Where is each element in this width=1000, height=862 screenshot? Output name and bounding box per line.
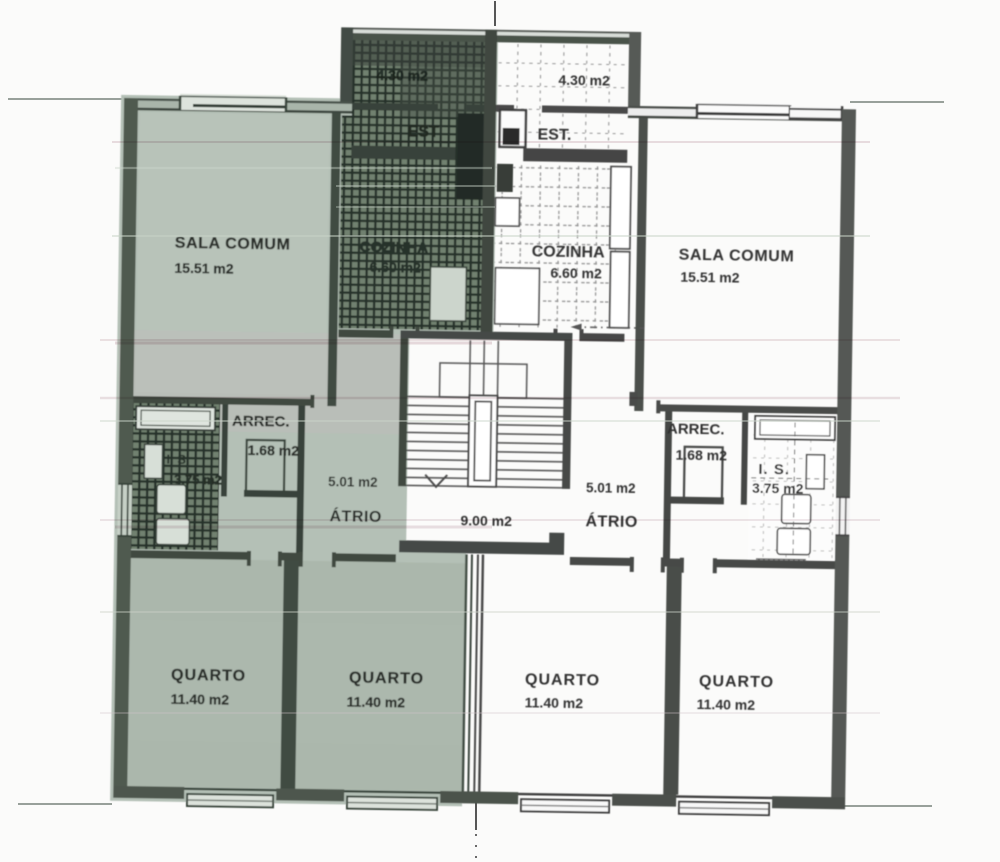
svg-text:11.40 m2: 11.40 m2 [525,694,584,711]
svg-text:6.60 m2: 6.60 m2 [369,259,421,276]
svg-text:I. S.: I. S. [758,461,790,478]
svg-text:11.40 m2: 11.40 m2 [347,693,406,710]
svg-text:I. S.: I. S. [166,452,189,467]
svg-text:ARREC.: ARREC. [667,420,725,438]
svg-text:ÁTRIO: ÁTRIO [329,506,382,526]
svg-text:COZINHA: COZINHA [360,239,429,257]
svg-text:ÁTRIO: ÁTRIO [585,511,638,531]
svg-text:QUARTO: QUARTO [349,670,424,688]
svg-text:3.75 m2: 3.75 m2 [174,472,222,488]
svg-text:11.40 m2: 11.40 m2 [697,696,756,713]
svg-text:3.75 m2: 3.75 m2 [752,480,804,497]
svg-text:SALA COMUM: SALA COMUM [679,247,795,266]
svg-text:QUARTO: QUARTO [525,671,600,689]
svg-text:15.51 m2: 15.51 m2 [174,260,234,277]
svg-text:QUARTO: QUARTO [171,667,246,685]
svg-text:SALA COMUM: SALA COMUM [175,235,291,254]
svg-text:COZINHA: COZINHA [532,243,606,261]
svg-text:1.68 m2: 1.68 m2 [675,447,727,464]
svg-text:1.68 m2: 1.68 m2 [247,442,299,459]
svg-text:15.51 m2: 15.51 m2 [680,269,740,286]
svg-text:EST: EST [407,123,439,140]
svg-text:5.01 m2: 5.01 m2 [328,474,378,490]
svg-text:4.30 m2: 4.30 m2 [558,72,610,89]
svg-text:QUARTO: QUARTO [699,673,774,691]
svg-text:11.40 m2: 11.40 m2 [171,691,230,708]
svg-text:5.01 m2: 5.01 m2 [586,480,636,496]
svg-text:4.30 m2: 4.30 m2 [376,67,428,84]
svg-text:6.60 m2: 6.60 m2 [550,265,602,282]
